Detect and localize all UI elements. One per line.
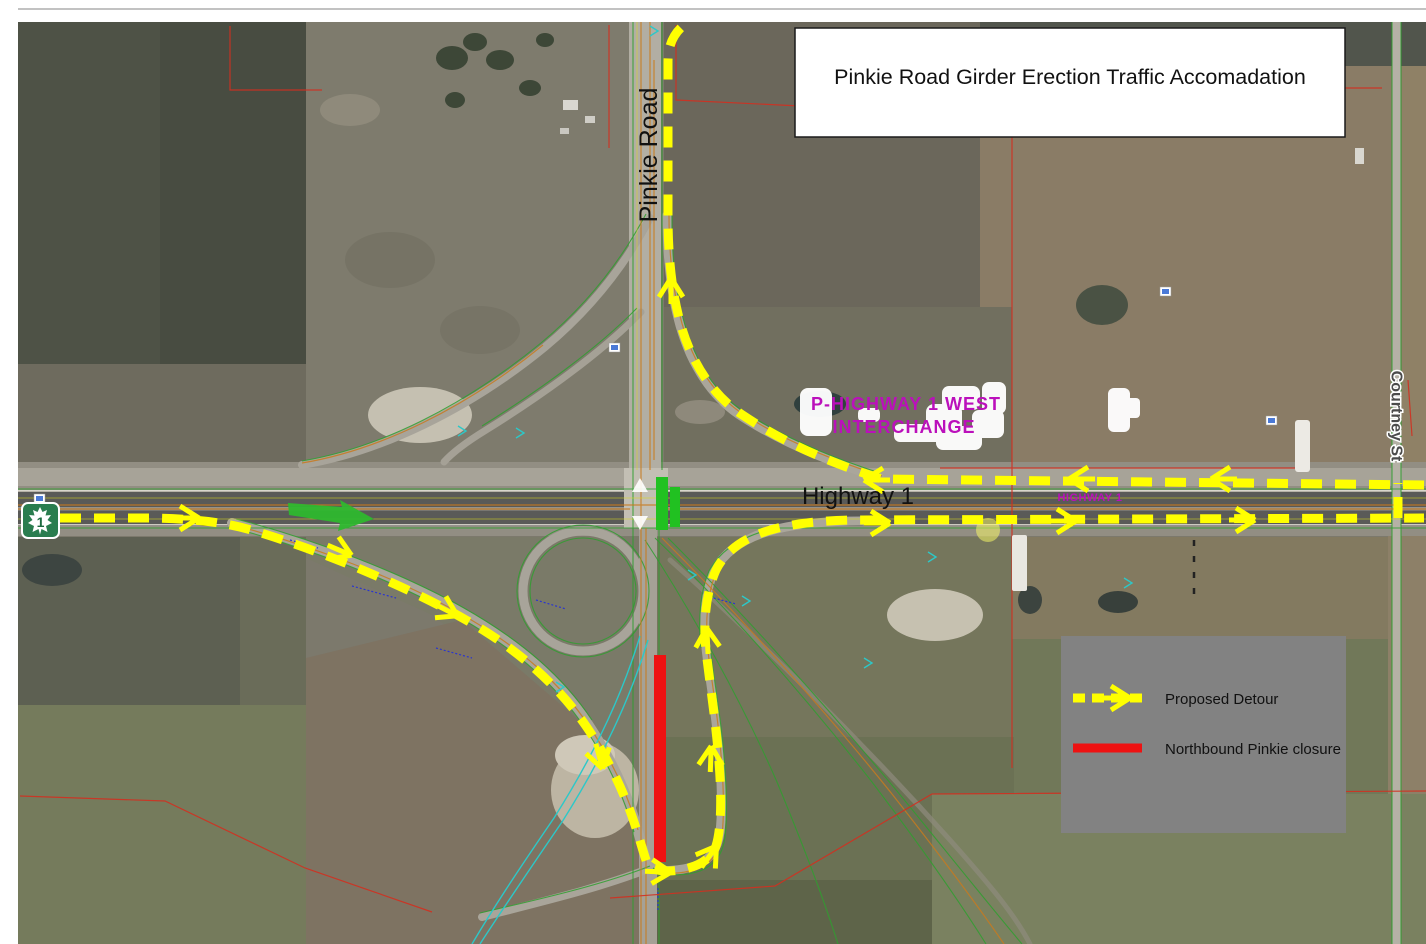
title-box: Pinkie Road Girder Erection Traffic Acco… <box>795 28 1345 137</box>
interchange-label-line2: INTERCHANGE <box>832 417 975 437</box>
highway-1-small-label: HIGHWAY 1 <box>1057 492 1122 504</box>
courtney-st-label: Courtney St <box>1388 371 1405 462</box>
highway-1-label: Highway 1 <box>802 483 914 510</box>
page-title: Pinkie Road Girder Erection Traffic Acco… <box>834 65 1306 89</box>
white-structure <box>1012 535 1027 591</box>
legend: Proposed Detour Northbound Pinkie closur… <box>1061 636 1346 833</box>
interchange-label-line1: P-HIGHWAY 1 WEST <box>811 394 1001 414</box>
legend-detour-label: Proposed Detour <box>1165 691 1278 708</box>
pinkie-road-label: Pinkie Road <box>635 88 663 223</box>
northbound-closure-bar <box>654 655 666 862</box>
shield-number: 1 <box>37 514 45 530</box>
truck-on-courtney <box>1295 420 1310 472</box>
highway-1-shield: 1 <box>22 503 59 538</box>
traffic-accommodation-map-page: 1 Pinkie Road Highway 1 HIGHWAY 1 Courtn… <box>0 0 1426 944</box>
legend-panel <box>1061 636 1346 833</box>
detour-map-image: 1 Pinkie Road Highway 1 HIGHWAY 1 Courtn… <box>0 0 1426 944</box>
legend-closure-label: Northbound Pinkie closure <box>1165 741 1341 758</box>
